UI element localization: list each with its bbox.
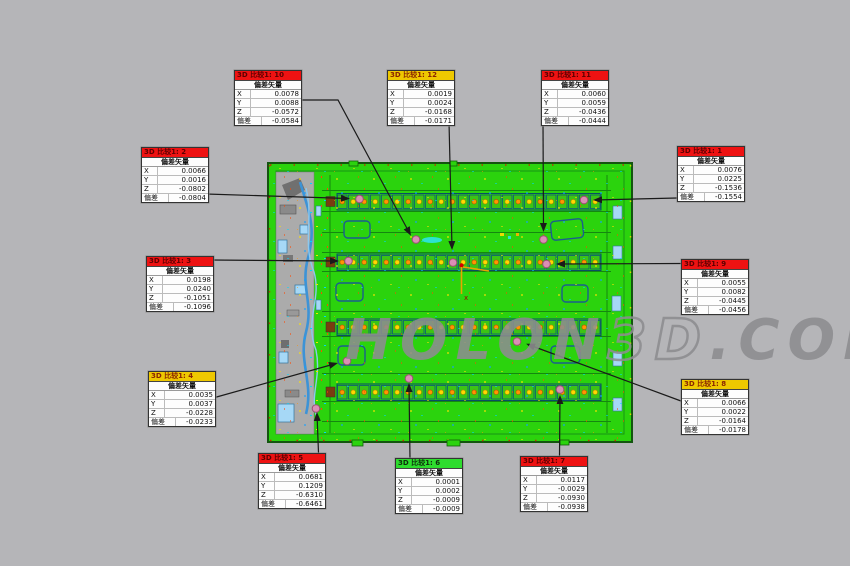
row-x: X0.0001 bbox=[396, 478, 462, 487]
label-x: X bbox=[678, 166, 694, 174]
callout-subtitle: 偏差矢量 bbox=[388, 81, 454, 90]
row-deviation: 偏差-0.0178 bbox=[682, 426, 748, 434]
row-deviation: 偏差-0.0584 bbox=[235, 117, 301, 125]
row-x: X0.0681 bbox=[259, 473, 325, 482]
row-y: Y0.0022 bbox=[682, 408, 748, 417]
row-z: Z-0.0228 bbox=[149, 409, 215, 418]
value-y: 0.0002 bbox=[412, 487, 462, 495]
row-x: X0.0019 bbox=[388, 90, 454, 99]
label-x: X bbox=[682, 279, 698, 287]
value-z: -0.0445 bbox=[698, 297, 748, 305]
value-y: 0.0082 bbox=[698, 288, 748, 296]
callout-title: 3D 比较1: 2 bbox=[142, 148, 208, 158]
row-y: Y0.0016 bbox=[142, 176, 208, 185]
value-y: 0.0024 bbox=[404, 99, 454, 107]
value-y: -0.0029 bbox=[537, 485, 587, 493]
label-y: Y bbox=[142, 176, 158, 184]
watermark: HOLON3D.COM bbox=[345, 308, 850, 373]
label-y: Y bbox=[149, 400, 165, 408]
callout-title: 3D 比较1: 1 bbox=[678, 147, 744, 157]
row-y: Y0.0002 bbox=[396, 487, 462, 496]
callout-subtitle: 偏差矢量 bbox=[396, 469, 462, 478]
value-deviation: -0.0009 bbox=[423, 505, 462, 513]
label-y: Y bbox=[521, 485, 537, 493]
row-deviation: 偏差-0.0444 bbox=[542, 117, 608, 125]
value-x: 0.0078 bbox=[251, 90, 301, 98]
label-z: Z bbox=[678, 184, 694, 192]
watermark-part3: .COM bbox=[709, 308, 850, 373]
callout-subtitle: 偏差矢量 bbox=[542, 81, 608, 90]
callout-title: 3D 比较1: 11 bbox=[542, 71, 608, 81]
row-z: Z-0.1536 bbox=[678, 184, 744, 193]
label-z: Z bbox=[682, 297, 698, 305]
value-x: 0.0066 bbox=[698, 399, 748, 407]
callout-subtitle: 偏差矢量 bbox=[678, 157, 744, 166]
callout-title: 3D 比较1: 3 bbox=[147, 257, 213, 267]
value-y: 0.1209 bbox=[275, 482, 325, 490]
callout-subtitle: 偏差矢量 bbox=[682, 390, 748, 399]
row-deviation: 偏差-0.0171 bbox=[388, 117, 454, 125]
label-y: Y bbox=[678, 175, 694, 183]
value-y: 0.0059 bbox=[558, 99, 608, 107]
label-deviation: 偏差 bbox=[259, 500, 286, 508]
value-deviation: -0.0444 bbox=[569, 117, 608, 125]
row-deviation: 偏差-0.1554 bbox=[678, 193, 744, 201]
label-deviation: 偏差 bbox=[678, 193, 705, 201]
row-x: X0.0078 bbox=[235, 90, 301, 99]
row-y: Y-0.0029 bbox=[521, 485, 587, 494]
value-x: 0.0060 bbox=[558, 90, 608, 98]
callout-3d-compare-1[interactable]: 3D 比较1: 1 偏差矢量 X0.0076 Y0.0225 Z-0.1536 … bbox=[677, 146, 745, 202]
value-x: 0.0019 bbox=[404, 90, 454, 98]
callout-title: 3D 比较1: 7 bbox=[521, 457, 587, 467]
callout-title: 3D 比较1: 5 bbox=[259, 454, 325, 464]
value-deviation: -0.0456 bbox=[709, 306, 748, 314]
row-x: X0.0066 bbox=[682, 399, 748, 408]
label-deviation: 偏差 bbox=[235, 117, 262, 125]
value-y: 0.0022 bbox=[698, 408, 748, 416]
scanned-model[interactable]: x bbox=[268, 161, 632, 446]
callout-title: 3D 比较1: 12 bbox=[388, 71, 454, 81]
value-deviation: -0.0804 bbox=[169, 194, 208, 202]
value-z: -0.6310 bbox=[275, 491, 325, 499]
value-y: 0.0240 bbox=[163, 285, 213, 293]
value-z: -0.0168 bbox=[404, 108, 454, 116]
label-x: X bbox=[542, 90, 558, 98]
label-y: Y bbox=[388, 99, 404, 107]
value-deviation: -0.6461 bbox=[286, 500, 325, 508]
row-y: Y0.0082 bbox=[682, 288, 748, 297]
row-z: Z-0.0436 bbox=[542, 108, 608, 117]
value-x: 0.0001 bbox=[412, 478, 462, 486]
value-deviation: -0.0938 bbox=[548, 503, 587, 511]
row-z: Z-0.0164 bbox=[682, 417, 748, 426]
row-deviation: 偏差-0.0009 bbox=[396, 505, 462, 513]
callout-title: 3D 比较1: 10 bbox=[235, 71, 301, 81]
measurement-point-5[interactable] bbox=[312, 405, 320, 413]
row-z: Z-0.0572 bbox=[235, 108, 301, 117]
label-deviation: 偏差 bbox=[147, 303, 174, 311]
value-x: 0.0055 bbox=[698, 279, 748, 287]
callout-3d-compare-7[interactable]: 3D 比较1: 7 偏差矢量 X0.0117 Y-0.0029 Z-0.0930… bbox=[520, 456, 588, 512]
row-deviation: 偏差-0.0938 bbox=[521, 503, 587, 511]
callout-3d-compare-4[interactable]: 3D 比较1: 4 偏差矢量 X0.0035 Y0.0037 Z-0.0228 … bbox=[148, 371, 216, 427]
row-x: X0.0055 bbox=[682, 279, 748, 288]
row-deviation: 偏差-0.0804 bbox=[142, 194, 208, 202]
measurement-point-1[interactable] bbox=[580, 196, 588, 204]
callout-subtitle: 偏差矢量 bbox=[147, 267, 213, 276]
label-z: Z bbox=[388, 108, 404, 116]
row-y: Y0.0059 bbox=[542, 99, 608, 108]
label-deviation: 偏差 bbox=[682, 426, 709, 434]
row-z: Z-0.6310 bbox=[259, 491, 325, 500]
callout-3d-compare-2[interactable]: 3D 比较1: 2 偏差矢量 X0.0066 Y0.0016 Z-0.0802 … bbox=[141, 147, 209, 203]
value-y: 0.0225 bbox=[694, 175, 744, 183]
value-z: -0.0802 bbox=[158, 185, 208, 193]
row-deviation: 偏差-0.6461 bbox=[259, 500, 325, 508]
label-x: X bbox=[682, 399, 698, 407]
watermark-part2: 3D bbox=[608, 308, 709, 373]
row-y: Y0.0037 bbox=[149, 400, 215, 409]
measurement-point-10[interactable] bbox=[412, 236, 420, 244]
value-z: -0.0930 bbox=[537, 494, 587, 502]
label-z: Z bbox=[521, 494, 537, 502]
row-z: Z-0.0168 bbox=[388, 108, 454, 117]
label-deviation: 偏差 bbox=[142, 194, 169, 202]
label-y: Y bbox=[682, 288, 698, 296]
measurement-point-6[interactable] bbox=[405, 375, 413, 383]
callout-3d-compare-11[interactable]: 3D 比较1: 11 偏差矢量 X0.0060 Y0.0059 Z-0.0436… bbox=[541, 70, 609, 126]
label-x: X bbox=[259, 473, 275, 481]
measurement-point-12[interactable] bbox=[449, 259, 457, 267]
label-y: Y bbox=[147, 285, 163, 293]
row-z: Z-0.0930 bbox=[521, 494, 587, 503]
label-z: Z bbox=[682, 417, 698, 425]
callout-subtitle: 偏差矢量 bbox=[142, 158, 208, 167]
row-z: Z-0.1051 bbox=[147, 294, 213, 303]
callout-3d-compare-8[interactable]: 3D 比较1: 8 偏差矢量 X0.0066 Y0.0022 Z-0.0164 … bbox=[681, 379, 749, 435]
row-z: Z-0.0802 bbox=[142, 185, 208, 194]
label-deviation: 偏差 bbox=[396, 505, 423, 513]
value-x: 0.0681 bbox=[275, 473, 325, 481]
label-x: X bbox=[235, 90, 251, 98]
callout-subtitle: 偏差矢量 bbox=[259, 464, 325, 473]
row-x: X0.0198 bbox=[147, 276, 213, 285]
scan-noise bbox=[270, 166, 630, 440]
row-y: Y0.0024 bbox=[388, 99, 454, 108]
label-y: Y bbox=[396, 487, 412, 495]
value-deviation: -0.0584 bbox=[262, 117, 301, 125]
label-z: Z bbox=[235, 108, 251, 116]
value-z: -0.0164 bbox=[698, 417, 748, 425]
label-x: X bbox=[388, 90, 404, 98]
watermark-part1: HOLON bbox=[345, 308, 608, 373]
value-x: 0.0198 bbox=[163, 276, 213, 284]
value-y: 0.0016 bbox=[158, 176, 208, 184]
callout-subtitle: 偏差矢量 bbox=[682, 270, 748, 279]
label-z: Z bbox=[142, 185, 158, 193]
callout-subtitle: 偏差矢量 bbox=[521, 467, 587, 476]
measurement-point-3[interactable] bbox=[345, 257, 353, 265]
label-z: Z bbox=[259, 491, 275, 499]
label-x: X bbox=[142, 167, 158, 175]
measurement-point-9[interactable] bbox=[543, 260, 551, 268]
callout-3d-compare-12[interactable]: 3D 比较1: 12 偏差矢量 X0.0019 Y0.0024 Z-0.0168… bbox=[387, 70, 455, 126]
row-x: X0.0117 bbox=[521, 476, 587, 485]
row-x: X0.0066 bbox=[142, 167, 208, 176]
value-z: -0.0009 bbox=[412, 496, 462, 504]
label-x: X bbox=[147, 276, 163, 284]
value-x: 0.0076 bbox=[694, 166, 744, 174]
value-deviation: -0.0178 bbox=[709, 426, 748, 434]
callout-subtitle: 偏差矢量 bbox=[235, 81, 301, 90]
measurement-point-11[interactable] bbox=[540, 236, 548, 244]
row-y: Y0.0240 bbox=[147, 285, 213, 294]
value-deviation: -0.1554 bbox=[705, 193, 744, 201]
measurement-point-2[interactable] bbox=[356, 195, 364, 203]
value-deviation: -0.0233 bbox=[176, 418, 215, 426]
callout-title: 3D 比较1: 8 bbox=[682, 380, 748, 390]
value-z: -0.0572 bbox=[251, 108, 301, 116]
value-y: 0.0037 bbox=[165, 400, 215, 408]
row-y: Y0.0225 bbox=[678, 175, 744, 184]
callout-3d-compare-6[interactable]: 3D 比较1: 6 偏差矢量 X0.0001 Y0.0002 Z-0.0009 … bbox=[395, 458, 463, 514]
label-z: Z bbox=[396, 496, 412, 504]
label-z: Z bbox=[149, 409, 165, 417]
row-deviation: 偏差-0.0456 bbox=[682, 306, 748, 314]
label-y: Y bbox=[259, 482, 275, 490]
callout-3d-compare-9[interactable]: 3D 比较1: 9 偏差矢量 X0.0055 Y0.0082 Z-0.0445 … bbox=[681, 259, 749, 315]
label-x: X bbox=[521, 476, 537, 484]
row-z: Z-0.0009 bbox=[396, 496, 462, 505]
callout-subtitle: 偏差矢量 bbox=[149, 382, 215, 391]
value-deviation: -0.0171 bbox=[415, 117, 454, 125]
row-x: X0.0076 bbox=[678, 166, 744, 175]
row-x: X0.0035 bbox=[149, 391, 215, 400]
callout-3d-compare-3[interactable]: 3D 比较1: 3 偏差矢量 X0.0198 Y0.0240 Z-0.1051 … bbox=[146, 256, 214, 312]
value-x: 0.0066 bbox=[158, 167, 208, 175]
value-z: -0.0436 bbox=[558, 108, 608, 116]
callout-title: 3D 比较1: 6 bbox=[396, 459, 462, 469]
row-deviation: 偏差-0.1096 bbox=[147, 303, 213, 311]
label-y: Y bbox=[235, 99, 251, 107]
callout-3d-compare-5[interactable]: 3D 比较1: 5 偏差矢量 X0.0681 Y0.1209 Z-0.6310 … bbox=[258, 453, 326, 509]
value-z: -0.0228 bbox=[165, 409, 215, 417]
value-deviation: -0.1096 bbox=[174, 303, 213, 311]
row-deviation: 偏差-0.0233 bbox=[149, 418, 215, 426]
value-x: 0.0117 bbox=[537, 476, 587, 484]
measurement-point-7[interactable] bbox=[556, 386, 564, 394]
row-y: Y0.0088 bbox=[235, 99, 301, 108]
row-y: Y0.1209 bbox=[259, 482, 325, 491]
viewport-3d[interactable]: x bbox=[0, 0, 850, 566]
label-z: Z bbox=[542, 108, 558, 116]
label-deviation: 偏差 bbox=[682, 306, 709, 314]
value-x: 0.0035 bbox=[165, 391, 215, 399]
label-x: X bbox=[396, 478, 412, 486]
label-y: Y bbox=[682, 408, 698, 416]
label-y: Y bbox=[542, 99, 558, 107]
label-z: Z bbox=[147, 294, 163, 302]
label-deviation: 偏差 bbox=[521, 503, 548, 511]
value-z: -0.1536 bbox=[694, 184, 744, 192]
callout-3d-compare-10[interactable]: 3D 比较1: 10 偏差矢量 X0.0078 Y0.0088 Z-0.0572… bbox=[234, 70, 302, 126]
row-x: X0.0060 bbox=[542, 90, 608, 99]
row-z: Z-0.0445 bbox=[682, 297, 748, 306]
callout-title: 3D 比较1: 4 bbox=[149, 372, 215, 382]
value-z: -0.1051 bbox=[163, 294, 213, 302]
callout-title: 3D 比较1: 9 bbox=[682, 260, 748, 270]
label-deviation: 偏差 bbox=[388, 117, 415, 125]
label-deviation: 偏差 bbox=[149, 418, 176, 426]
value-y: 0.0088 bbox=[251, 99, 301, 107]
label-x: X bbox=[149, 391, 165, 399]
label-deviation: 偏差 bbox=[542, 117, 569, 125]
